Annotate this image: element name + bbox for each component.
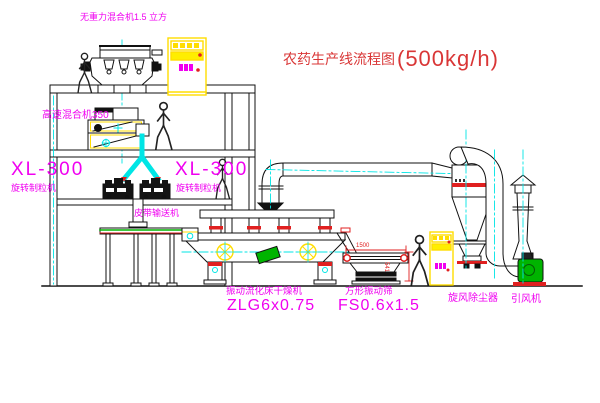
belt-conveyor-label: 皮带输送机	[134, 209, 179, 218]
granulator-model-1: XL-300	[11, 160, 84, 179]
dryer-fan-unit	[182, 228, 198, 241]
dryer-feet	[204, 262, 336, 284]
granulator-name-2: 旋转制粒机	[176, 184, 221, 193]
exhaust-duct	[258, 160, 452, 212]
granulator-2	[140, 178, 170, 199]
granulator-model-2: XL-300	[175, 160, 248, 179]
control-cabinet-2	[430, 232, 453, 285]
title-text: 农药生产线流程图	[283, 52, 395, 66]
title-capacity: (500kg/h)	[397, 48, 499, 70]
high-speed-mixer-label: 高速混合机350	[42, 111, 109, 121]
sieve-height-dimension: 541	[383, 262, 389, 272]
conveyor-legs	[103, 234, 177, 286]
control-cabinet-1	[168, 38, 206, 95]
dust-collector-label: 旋风除尘器	[448, 294, 498, 304]
diagram-title: 农药生产线流程图 (500kg/h)	[283, 48, 499, 70]
granulator-name-1: 旋转制粒机	[11, 184, 56, 193]
dryer-name-label: 振动流化床干燥机	[226, 287, 302, 297]
sieve-model-label: FS0.6x1.5	[338, 298, 420, 314]
induced-draft-fan	[513, 253, 546, 286]
fluid-bed-dryer	[182, 228, 350, 284]
vibrating-sieve	[343, 246, 413, 284]
worker-figure	[156, 103, 172, 149]
granulator-1	[103, 178, 133, 199]
sieve-name-label: 方形振动筛	[345, 287, 393, 297]
dryer-hood	[200, 210, 334, 233]
draft-fan-label: 引风机	[511, 295, 541, 305]
sieve-length-dimension: 1500	[356, 243, 369, 249]
gravity-mixer-label: 无重力混合机1.5 立方	[80, 13, 167, 22]
worker-figure	[411, 236, 428, 285]
dryer-model-label: ZLG6x0.75	[227, 298, 315, 314]
flow-diagram-page: 无重力混合机1.5 立方 农药生产线流程图 (500kg/h) 高速混合机350…	[0, 0, 600, 403]
